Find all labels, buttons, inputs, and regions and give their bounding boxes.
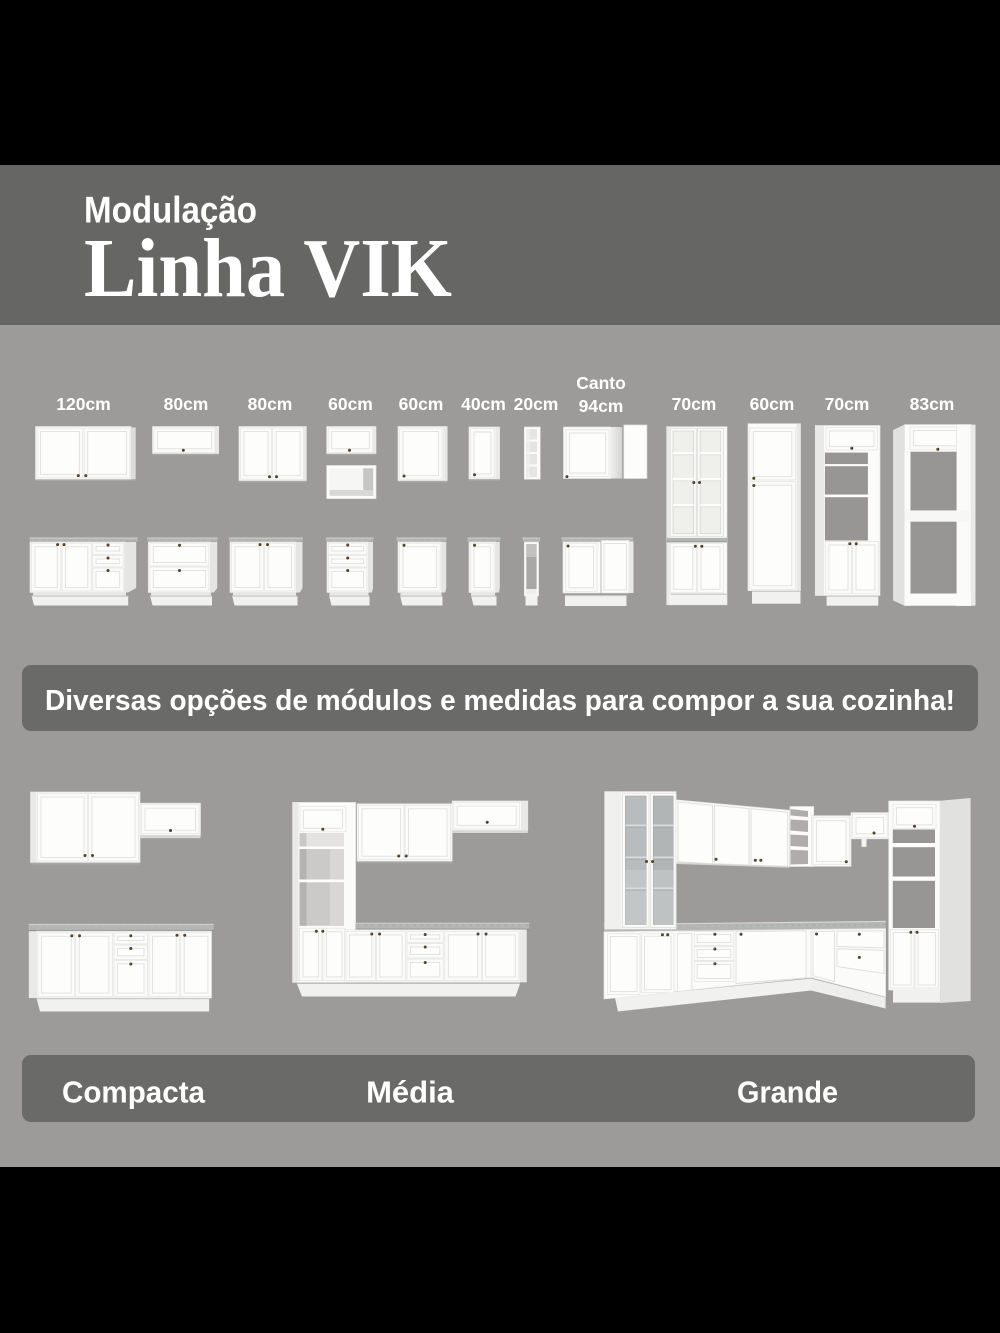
svg-text:60cm: 60cm: [750, 394, 795, 414]
svg-text:120cm: 120cm: [56, 394, 111, 414]
svg-text:60cm: 60cm: [328, 394, 373, 414]
svg-text:60cm: 60cm: [399, 394, 444, 414]
svg-text:70cm: 70cm: [825, 394, 870, 414]
svg-text:80cm: 80cm: [164, 394, 209, 414]
svg-text:Média: Média: [366, 1075, 455, 1110]
svg-text:83cm: 83cm: [910, 394, 955, 414]
svg-text:Compacta: Compacta: [62, 1075, 206, 1110]
svg-text:70cm: 70cm: [672, 394, 717, 414]
svg-text:40cm: 40cm: [461, 394, 506, 414]
svg-text:Diversas opções de módulos e m: Diversas opções de módulos e medidas par…: [45, 685, 955, 717]
svg-text:20cm: 20cm: [514, 394, 559, 414]
svg-text:94cm: 94cm: [579, 396, 624, 416]
svg-text:Linha VIK: Linha VIK: [84, 222, 452, 315]
svg-text:Canto: Canto: [576, 373, 626, 393]
svg-text:Grande: Grande: [737, 1075, 838, 1110]
svg-text:80cm: 80cm: [248, 394, 293, 414]
